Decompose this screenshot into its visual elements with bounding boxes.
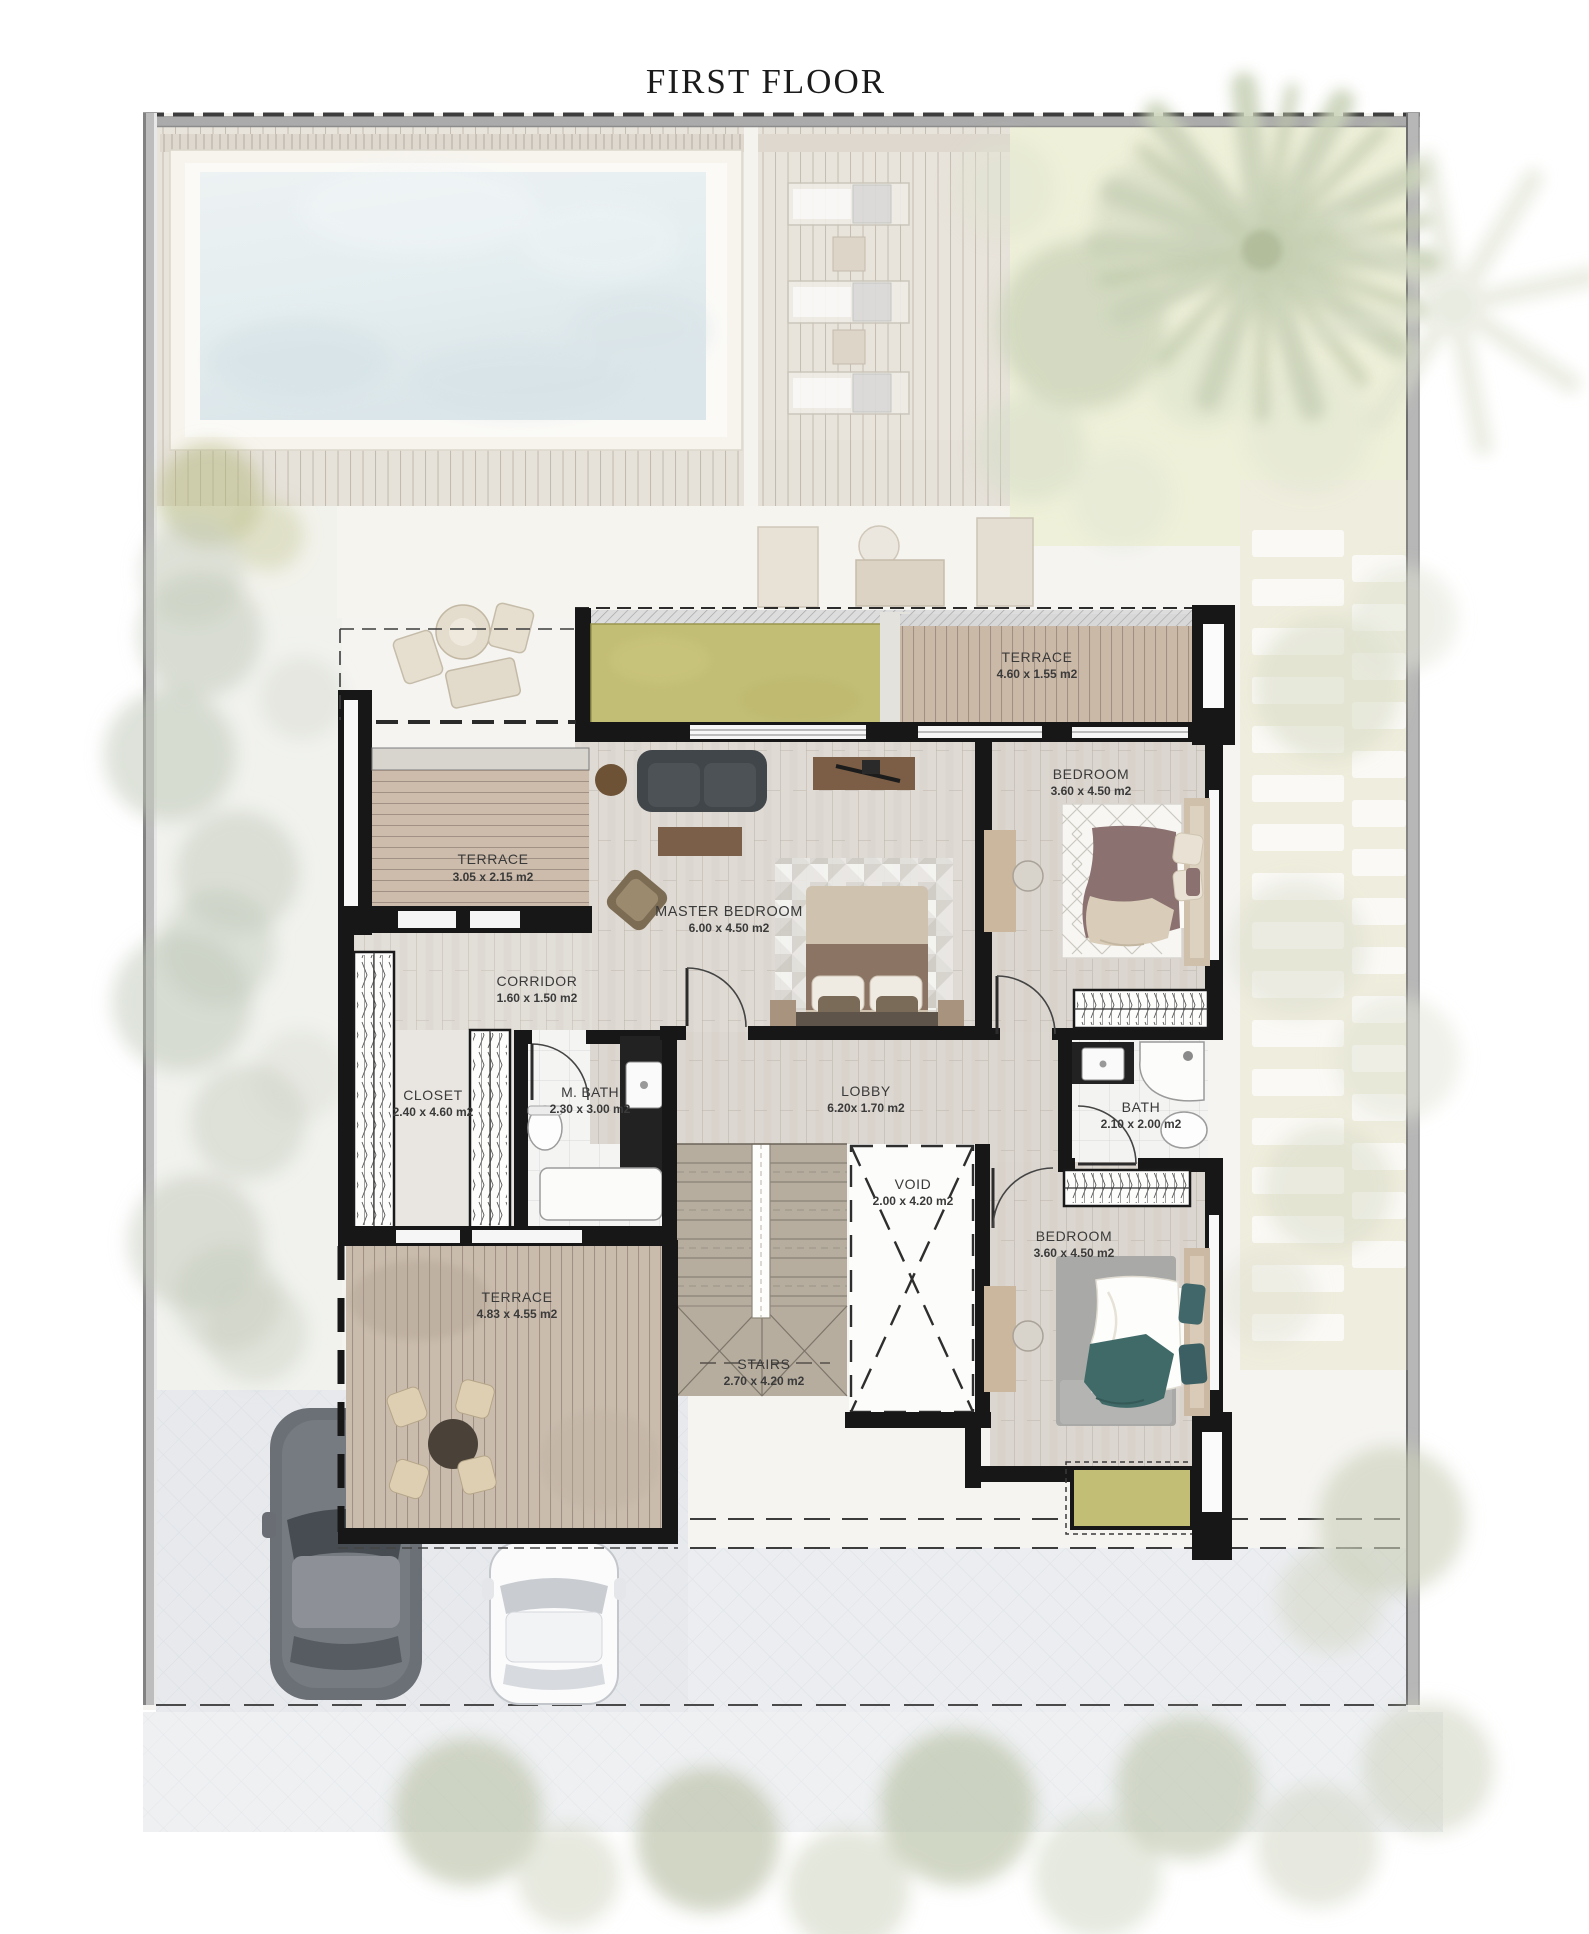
svg-text:4.83 x 4.55 m2: 4.83 x 4.55 m2	[477, 1307, 558, 1321]
svg-text:3.60 x 4.50 m2: 3.60 x 4.50 m2	[1051, 784, 1132, 798]
svg-text:LOBBY: LOBBY	[841, 1083, 891, 1099]
svg-text:M. BATH: M. BATH	[561, 1084, 619, 1100]
svg-text:4.60 x 1.55 m2: 4.60 x 1.55 m2	[997, 667, 1078, 681]
svg-text:1.60 x 1.50 m2: 1.60 x 1.50 m2	[497, 991, 578, 1005]
svg-text:FIRST FLOOR: FIRST FLOOR	[646, 62, 886, 101]
svg-text:BEDROOM: BEDROOM	[1036, 1228, 1113, 1244]
svg-text:3.05 x 2.15 m2: 3.05 x 2.15 m2	[453, 870, 534, 884]
svg-text:TERRACE: TERRACE	[457, 851, 528, 867]
svg-text:3.60 x 4.50 m2: 3.60 x 4.50 m2	[1034, 1246, 1115, 1260]
svg-text:MASTER BEDROOM: MASTER BEDROOM	[655, 904, 803, 920]
svg-text:BEDROOM: BEDROOM	[1053, 766, 1130, 782]
svg-text:STAIRS: STAIRS	[737, 1356, 790, 1372]
svg-text:2.00 x 4.20 m2: 2.00 x 4.20 m2	[873, 1194, 954, 1208]
svg-text:2.70 x 4.20 m2: 2.70 x 4.20 m2	[724, 1374, 805, 1388]
svg-text:6.00 x 4.50 m2: 6.00 x 4.50 m2	[689, 921, 770, 935]
svg-text:2.10 x 2.00 m2: 2.10 x 2.00 m2	[1101, 1117, 1182, 1131]
svg-text:TERRACE: TERRACE	[1001, 649, 1072, 665]
svg-text:BATH: BATH	[1122, 1099, 1161, 1115]
svg-text:2.30 x 3.00 m2: 2.30 x 3.00 m2	[550, 1102, 631, 1116]
svg-text:CORRIDOR: CORRIDOR	[496, 973, 577, 989]
svg-text:2.40 x 4.60 m2: 2.40 x 4.60 m2	[393, 1105, 474, 1119]
svg-text:TERRACE: TERRACE	[481, 1289, 552, 1305]
svg-text:6.20x 1.70 m2: 6.20x 1.70 m2	[827, 1101, 905, 1115]
svg-text:VOID: VOID	[895, 1176, 932, 1192]
svg-text:CLOSET: CLOSET	[403, 1087, 463, 1103]
